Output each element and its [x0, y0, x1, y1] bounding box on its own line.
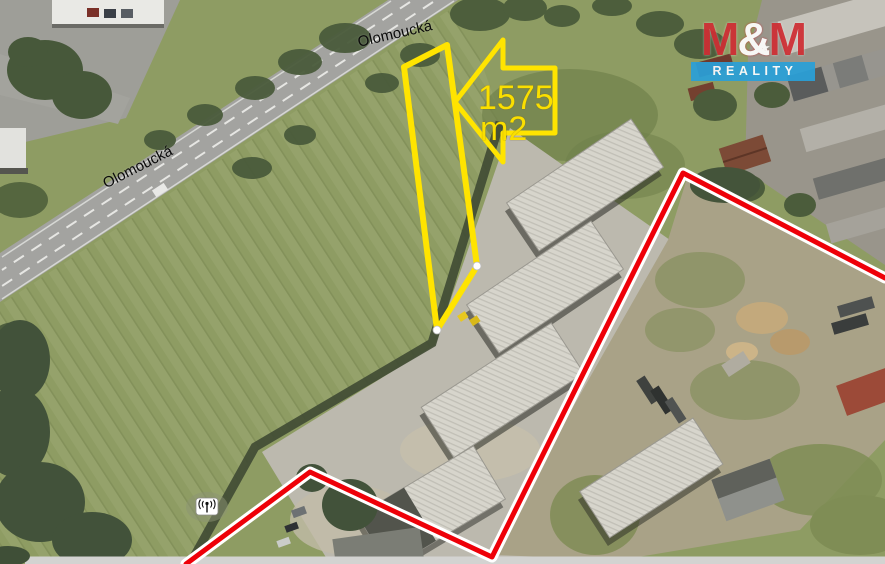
property-boundary-casing — [186, 173, 885, 564]
mm-reality-logo: M&M★ REALITY — [688, 18, 818, 81]
parcel-vertex-dot — [473, 262, 481, 270]
logo-m-left: M — [701, 13, 737, 65]
annotation-layer — [0, 0, 885, 564]
property-boundary-line — [186, 173, 885, 564]
aerial-map: Olomoucká Olomoucká 1575 m2 M&M★ REALITY — [0, 0, 885, 564]
logo-wordmark: M&M★ — [688, 18, 818, 60]
parcel-area-unit: m2 — [480, 112, 527, 146]
logo-m-right: M — [769, 13, 805, 65]
logo-star-icon: ★ — [759, 42, 771, 54]
logo-ampersand: & — [737, 13, 768, 65]
parcel-vertex-dot — [433, 326, 441, 334]
logo-subtitle: REALITY — [691, 62, 815, 81]
